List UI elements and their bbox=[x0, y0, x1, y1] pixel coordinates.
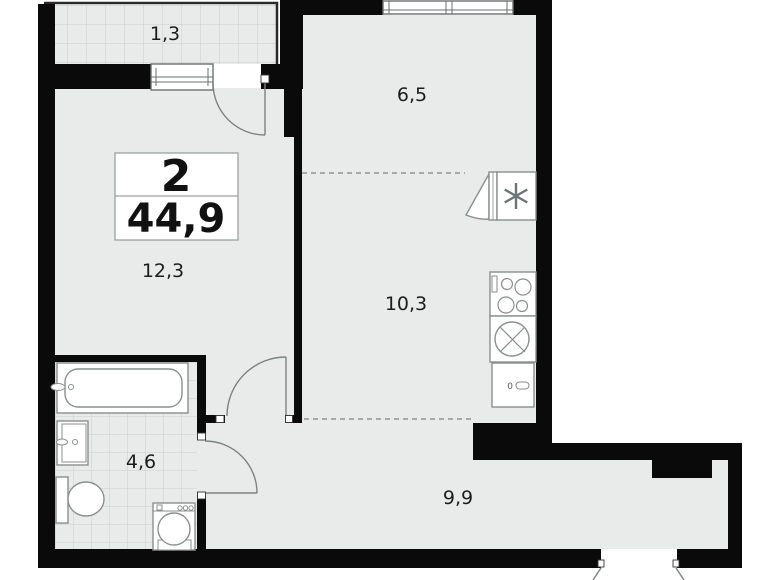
balcony-window bbox=[151, 64, 213, 90]
hallway-area-label: 9,9 bbox=[443, 487, 473, 509]
door-jamb bbox=[598, 560, 604, 567]
wall-segment bbox=[728, 443, 742, 568]
wall-segment bbox=[197, 492, 206, 549]
kitchen-sink bbox=[490, 316, 536, 362]
balcony-area-label: 1,3 bbox=[150, 23, 180, 45]
room-count-label: 2 bbox=[161, 151, 192, 202]
door-jamb bbox=[286, 416, 293, 423]
total-area-label: 44,9 bbox=[127, 196, 226, 242]
wall-segment bbox=[38, 549, 601, 568]
wall-segment bbox=[294, 137, 302, 423]
living-area-label: 12,3 bbox=[142, 260, 184, 282]
wall-segment bbox=[303, 0, 383, 15]
living-doorway-floor bbox=[225, 415, 285, 423]
wall-segment bbox=[552, 443, 742, 460]
washbasin bbox=[57, 421, 89, 465]
wall-segment bbox=[38, 64, 151, 89]
bedroom-area-label: 6,5 bbox=[397, 84, 427, 106]
apartment-info-box: 2 44,9 bbox=[115, 151, 238, 242]
wall-segment bbox=[197, 355, 206, 440]
door-jamb bbox=[673, 560, 679, 567]
bathroom-area-label: 4,6 bbox=[126, 451, 156, 473]
washing-machine bbox=[153, 503, 195, 550]
wall-segment bbox=[280, 0, 303, 89]
door-jamb bbox=[198, 492, 206, 499]
living-room-passage-floor bbox=[206, 355, 294, 423]
bathroom-doorway-floor bbox=[197, 440, 206, 492]
wall-segment bbox=[652, 460, 712, 478]
wall-segment bbox=[473, 423, 552, 460]
bathtub bbox=[51, 363, 188, 413]
floor-plan-page: 0 2 44,9 1,3 6,5 12,3 10,3 4,6 9,9 bbox=[0, 0, 780, 580]
stove bbox=[490, 272, 536, 316]
bedroom-window bbox=[383, 1, 513, 14]
wall-segment bbox=[284, 85, 302, 137]
kitchen-area-label: 10,3 bbox=[385, 293, 427, 315]
hallway-floor-left bbox=[206, 423, 473, 549]
door-jamb bbox=[216, 416, 224, 423]
wall-segment bbox=[536, 0, 552, 443]
floor-plan: 0 2 44,9 1,3 6,5 12,3 10,3 4,6 9,9 bbox=[0, 0, 780, 580]
door-jamb bbox=[261, 75, 269, 83]
cabinet-label: 0 bbox=[507, 382, 513, 392]
wall-segment bbox=[38, 355, 206, 362]
kitchen-cabinet: 0 bbox=[492, 363, 534, 407]
door-jamb bbox=[198, 433, 206, 440]
